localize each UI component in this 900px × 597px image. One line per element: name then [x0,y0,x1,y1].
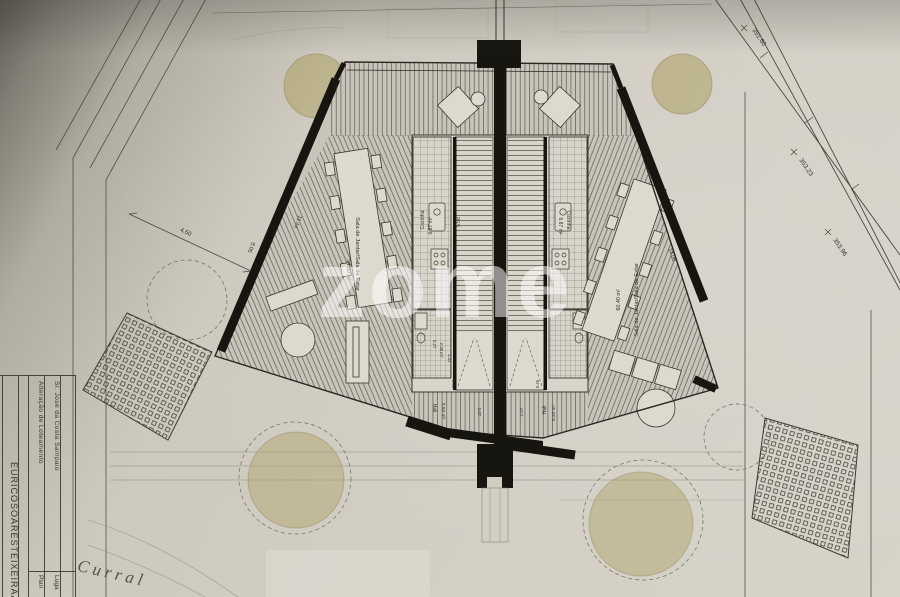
project-title: Alteração de Loteamento [30,381,44,464]
dim-offset: 4.50 [179,228,193,239]
living-right-name: Sala de Jantar/Sala de Estar [634,263,640,337]
hall-left-area: 5.50 m² [440,403,446,420]
title-block-border [0,375,75,376]
dim-wc-width: 2.27 [432,340,437,349]
dimension-line-offset [129,213,251,272]
dim-left-wall-outer: 8.05 [246,241,256,253]
tree-icon [589,472,693,576]
road-top-right [712,0,900,302]
paving-area-right [752,418,858,558]
living-right-area: 60.40 m² [616,289,622,310]
dim-wc-depth: 1.31 [447,354,452,363]
kitchen-right-name: Cozinha [565,210,571,229]
kitchen-left-name: Cozinha [420,210,426,229]
paving-area-left [83,313,212,440]
deck-circle-right [637,389,675,427]
entrance-walkway [482,488,508,542]
site-plan-drawing: 4.50 8.05 11.44 14.00 5.58 Sala de Janta… [0,0,900,597]
elevation-1: 351.60 [750,27,767,48]
deck-circle-left [281,323,315,357]
dim-door-right: 0.46 [535,379,540,388]
dim-kitchen-depth: 5.58 [456,217,462,227]
elevation-3: 353.96 [831,237,848,258]
tree-icon [248,432,344,528]
dim-hall-left-width: 2.07 [477,408,482,417]
planter-box [346,321,369,383]
hall-right-area: 5.20 m² [551,404,557,421]
plan-photo: 4.50 8.05 11.44 14.00 5.58 Sala de Janta… [0,0,900,597]
elevation-2: 353.23 [797,157,814,178]
chimney-block [477,40,521,68]
hall-right-name: Hall [542,406,548,415]
living-left-area: 54.80 m² [345,259,351,280]
field-plan: Plan [30,575,44,588]
dim-door-left: 0.46 [451,380,456,389]
entrance [440,427,543,542]
kitchen-right-area: 6.87 m² [557,218,563,235]
architect-name: EURICOSOARESTEIXEIRAARQUITETO [3,462,19,597]
stair-right [507,137,545,390]
hall-left-name: Hall [431,404,437,413]
dim-hall-right-width: 2.07 [519,407,524,416]
client-name: Sr. José da Costa Sampaio [46,381,60,471]
tree-icon [652,54,712,114]
living-left-name: Sala de Jantar/Sala de Estar [354,217,360,291]
field-place: Luga [46,575,60,590]
dim-wc-area: 2.30 m² [439,343,444,358]
stair-left [455,137,493,390]
kitchen-left-area: 6.87 m² [428,217,434,234]
